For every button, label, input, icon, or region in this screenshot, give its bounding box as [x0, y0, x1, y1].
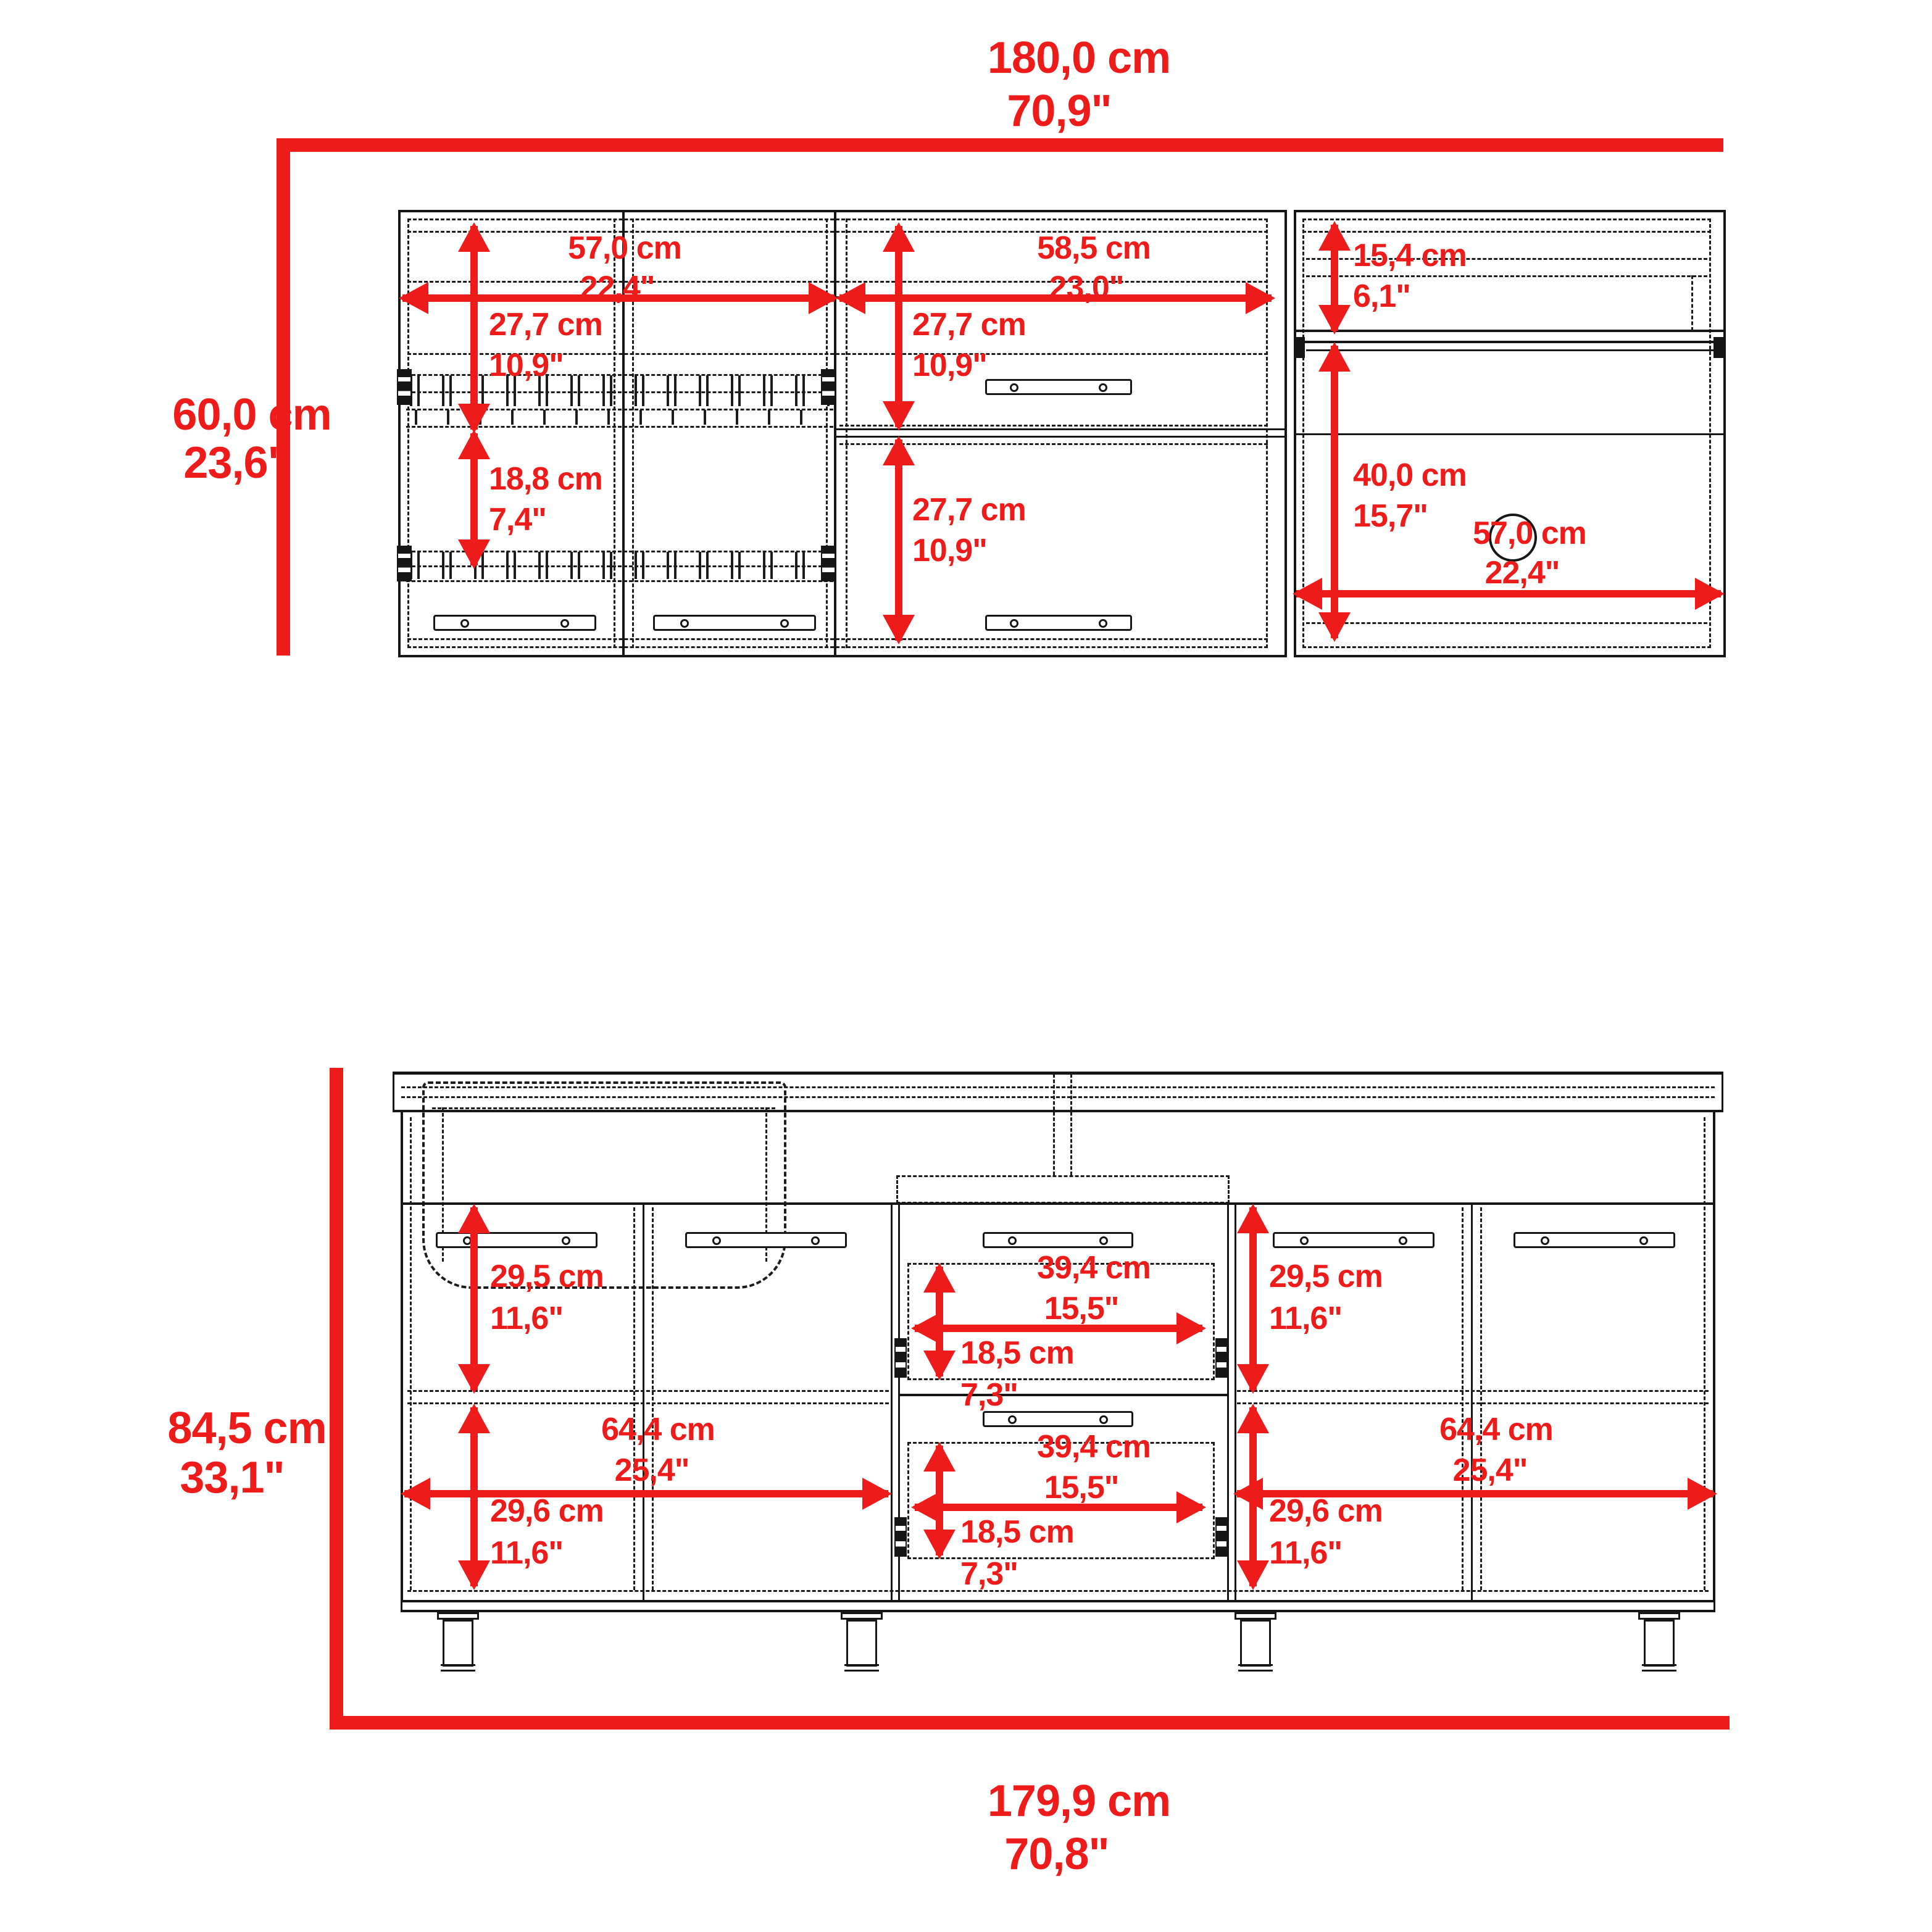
- drawer-unit-left-wall-a: [891, 1205, 893, 1600]
- right-section-dashed-b: [1306, 275, 1707, 277]
- base-right-lower-door-in: 11,6": [1269, 1536, 1342, 1570]
- right-shelf-height-cm: 15,4 cm: [1353, 238, 1467, 273]
- top-drawer-width-cm: 39,4 cm: [1037, 1251, 1151, 1285]
- base-door3-handle: [1273, 1232, 1434, 1248]
- upper-mid-divider: [834, 212, 836, 655]
- base-right-upper-door-in: 11,6": [1269, 1301, 1342, 1336]
- right-section-dashed-vertical: [1691, 275, 1693, 331]
- right-shelf-top: [1295, 330, 1725, 332]
- right-section-width-in: 22,4": [1485, 556, 1560, 590]
- dim-arrow-middle-topdoor: [895, 226, 902, 427]
- upper-overall-width-cm: 180,0 cm: [988, 35, 1170, 83]
- base-overall-width-in: 70,8": [1004, 1831, 1109, 1879]
- bottom-drawer-height-cm: 18,5 cm: [960, 1515, 1074, 1549]
- base-height-dimension-line: [330, 1068, 343, 1730]
- base-rdoor-divider-dashed-a: [1462, 1207, 1464, 1590]
- top-drawer-height-cm: 18,5 cm: [960, 1336, 1074, 1370]
- base-right-width-in: 25,4": [1453, 1453, 1528, 1488]
- right-lower-height-in: 15,7": [1353, 499, 1428, 533]
- base-inner-dashed-right: [1704, 1117, 1705, 1590]
- upper-door1-handle: [433, 615, 596, 631]
- base-width-dimension-line: [330, 1716, 1730, 1730]
- right-shelf-rail: [1306, 349, 1713, 351]
- base-left-upper-door-cm: 29,5 cm: [490, 1259, 604, 1294]
- base-overall-height-cm: 84,5 cm: [167, 1405, 326, 1453]
- drawer-unit-divider: [898, 1394, 1227, 1396]
- upper-overall-width-in: 70,9": [1007, 88, 1111, 136]
- middle-topdoor-height-in: 10,9": [912, 348, 987, 383]
- base-door4-handle: [1514, 1232, 1675, 1248]
- left-upper-height-in: 10,9": [489, 348, 564, 383]
- bottom-drawer-width-cm: 39,4 cm: [1037, 1430, 1151, 1464]
- dim-arrow-bottom-drawer-height: [936, 1446, 943, 1555]
- sink-rim-dashed: [432, 1107, 775, 1109]
- base-door2-handle: [685, 1232, 847, 1248]
- faucet-dashed-left: [1053, 1074, 1055, 1175]
- top-drawer-slide-right: [1215, 1338, 1228, 1378]
- hinge-upper-left-top: [397, 369, 412, 405]
- bottom-drawer-slide-right: [1215, 1517, 1228, 1557]
- bottom-drawer-height-in: 7,3": [960, 1557, 1018, 1591]
- base-bottom-rail: [401, 1600, 1715, 1612]
- hinge-upper-mid-top: [821, 369, 836, 405]
- dim-arrow-right-shelf: [1331, 225, 1338, 331]
- hinge-upper-left-bottom: [397, 546, 412, 581]
- right-back-panel-line: [1296, 433, 1723, 435]
- upper-overall-height-cm: 60,0 cm: [172, 391, 331, 439]
- dim-arrow-base-left-width: [404, 1490, 888, 1497]
- shelf-bracket-left: [1295, 337, 1305, 358]
- middle-topdoor-height-cm: 27,7 cm: [912, 307, 1026, 342]
- base-doors-top-line: [401, 1202, 1715, 1205]
- drawer-unit-right-wall-b: [1235, 1205, 1236, 1600]
- right-section-bottom-dashed: [1306, 622, 1707, 624]
- base-door1-handle: [436, 1232, 598, 1248]
- bottom-drawer-width-in: 15,5": [1044, 1470, 1119, 1505]
- left-section-width-cm: 57,0 cm: [568, 231, 681, 265]
- shelf-bracket-right: [1713, 337, 1723, 358]
- base-right-shelf-dashed-b: [1237, 1402, 1709, 1404]
- base-inner-dashed-left: [410, 1117, 412, 1590]
- middle-bottomdoor-height-cm: 27,7 cm: [912, 493, 1026, 527]
- middle-section-width-cm: 58,5 cm: [1037, 231, 1151, 265]
- top-drawer-slide-left: [894, 1338, 907, 1378]
- base-doors-bottom-dashed: [407, 1590, 1709, 1592]
- base-rdoor-divider-dashed-b: [1480, 1207, 1482, 1590]
- upper-right-top-dashed: [1302, 231, 1711, 233]
- dim-arrow-left-upper: [470, 226, 478, 430]
- right-section-width-cm: 57,0 cm: [1473, 516, 1586, 551]
- drawer-unit-top-dashed: [896, 1175, 1230, 1204]
- base-left-wall: [401, 1112, 403, 1600]
- top-drawer-width-in: 15,5": [1044, 1291, 1119, 1326]
- base-left-lower-door-in: 11,6": [490, 1536, 563, 1570]
- right-shelf-bottom: [1295, 341, 1725, 343]
- hinge-upper-mid-bottom: [821, 546, 836, 581]
- dim-arrow-right-width: [1296, 590, 1721, 598]
- rack-lower-rail-3: [406, 580, 833, 582]
- left-section-width-in: 22,4": [580, 270, 655, 305]
- dim-arrow-left-lower: [470, 433, 478, 565]
- top-drawer-height-in: 7,3": [960, 1378, 1018, 1412]
- base-right-upper-door-cm: 29,5 cm: [1269, 1259, 1383, 1294]
- faucet-dashed-right: [1070, 1074, 1072, 1175]
- left-lower-height-cm: 18,8 cm: [489, 462, 602, 496]
- base-door-divider-dashed-a: [633, 1207, 635, 1590]
- base-right-lower-door-cm: 29,6 cm: [1269, 1494, 1383, 1528]
- middle-top-door-handle: [985, 379, 1132, 395]
- upper-doors-bottom-dashed: [407, 638, 1268, 640]
- base-right-shelf-dashed-a: [1237, 1390, 1709, 1392]
- base-left-upper-door-in: 11,6": [490, 1301, 563, 1336]
- middle-section-width-in: 23,0": [1049, 270, 1124, 305]
- middle-bottomdoor-height-in: 10,9": [912, 533, 987, 568]
- left-upper-height-cm: 27,7 cm: [489, 307, 602, 342]
- base-left-lower-door-cm: 29,6 cm: [490, 1494, 604, 1528]
- cabinet-dimension-drawing: 180,0 cm 70,9" 60,0 cm 23,6": [0, 0, 1932, 1932]
- upper-door2-handle: [653, 615, 816, 631]
- dim-arrow-base-right-upper: [1249, 1207, 1257, 1390]
- base-overall-height-in: 33,1": [180, 1454, 284, 1502]
- left-lower-height-in: 7,4": [489, 502, 546, 537]
- dim-arrow-middle-bottomdoor: [895, 439, 902, 641]
- middle-bottom-door-handle: [985, 615, 1132, 631]
- bottom-drawer-handle: [983, 1411, 1133, 1427]
- top-drawer-handle: [983, 1232, 1133, 1248]
- base-right-wall: [1713, 1112, 1715, 1600]
- upper-overall-height-in: 23,6": [183, 439, 288, 488]
- bottom-drawer-slide-left: [894, 1517, 907, 1557]
- base-left-width-in: 25,4": [615, 1453, 689, 1488]
- right-lower-height-cm: 40,0 cm: [1353, 458, 1467, 493]
- base-door-divider-dashed-b: [652, 1207, 654, 1590]
- dim-arrow-base-left-upper: [470, 1207, 478, 1390]
- base-left-width-cm: 64,4 cm: [601, 1412, 715, 1447]
- base-right-width-cm: 64,4 cm: [1439, 1412, 1553, 1447]
- right-shelf-height-in: 6,1": [1353, 279, 1410, 314]
- dim-arrow-top-drawer-height: [936, 1267, 943, 1376]
- upper-width-dimension-line: [277, 138, 1723, 152]
- base-overall-width-cm: 179,9 cm: [988, 1778, 1170, 1826]
